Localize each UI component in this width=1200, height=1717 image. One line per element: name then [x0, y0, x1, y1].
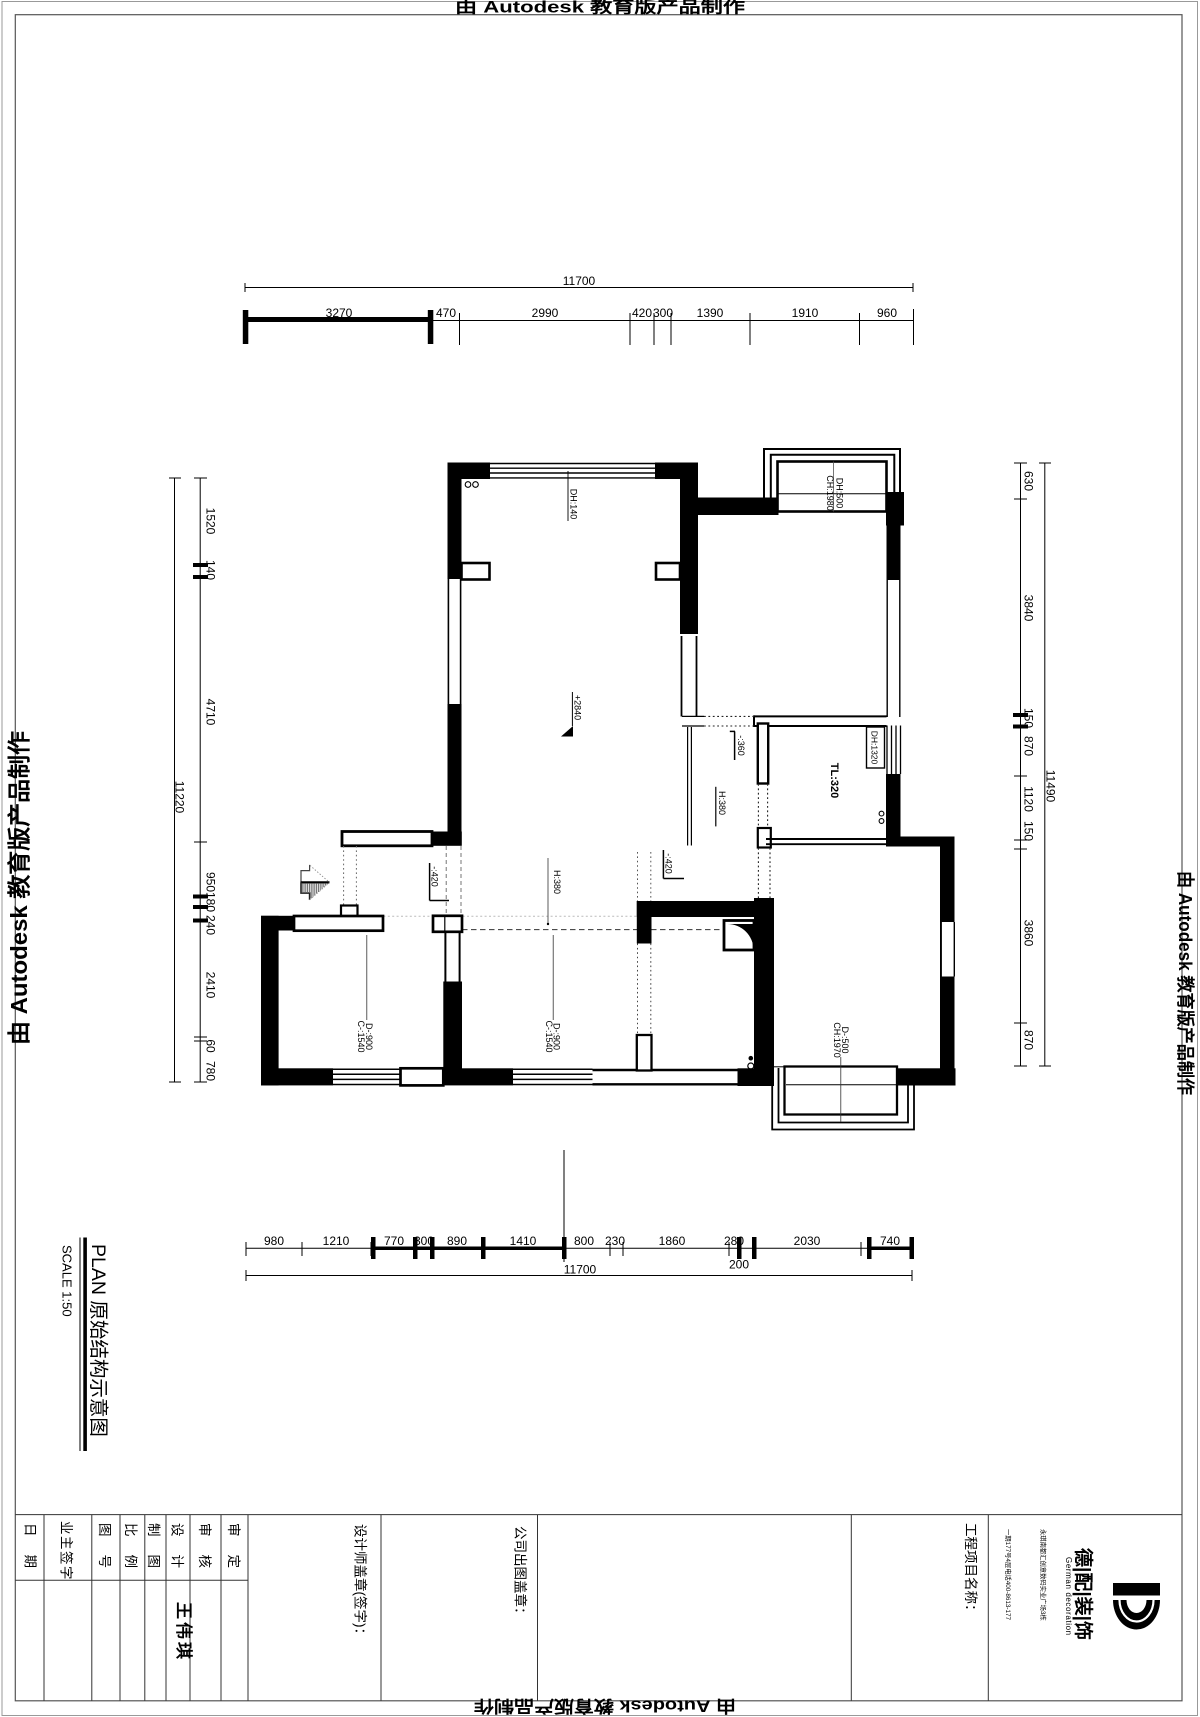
svg-text:470: 470	[436, 306, 456, 320]
svg-text:-:420: -:420	[430, 866, 440, 887]
svg-text:审核: 审核	[197, 1523, 212, 1586]
svg-text:H:380: H:380	[552, 870, 562, 894]
svg-text:2410: 2410	[204, 972, 218, 999]
svg-text:制图: 制图	[146, 1523, 161, 1586]
svg-text:890: 890	[447, 1234, 467, 1248]
svg-text:CH:1970: CH:1970	[832, 1022, 842, 1058]
svg-text:2030: 2030	[794, 1234, 821, 1248]
svg-text:230: 230	[605, 1234, 625, 1248]
svg-text:H:380: H:380	[717, 791, 727, 815]
svg-text:TL:320: TL:320	[828, 763, 840, 798]
svg-text:240: 240	[204, 915, 218, 935]
svg-text:280: 280	[724, 1234, 744, 1248]
svg-text:审定: 审定	[226, 1523, 241, 1586]
svg-text:一期177号4层电话400-8613-177: 一期177号4层电话400-8613-177	[1004, 1529, 1013, 1621]
svg-text:11700: 11700	[564, 1263, 597, 1277]
svg-text:+2840: +2840	[573, 695, 583, 720]
svg-text:150: 150	[1022, 821, 1036, 841]
svg-text:设计师盖章(签字)：: 设计师盖章(签字)：	[353, 1524, 369, 1641]
svg-text:1210: 1210	[323, 1234, 350, 1248]
svg-text:业主签字: 业主签字	[59, 1521, 75, 1581]
svg-text:DH:500: DH:500	[835, 478, 845, 509]
svg-text:2990: 2990	[532, 306, 559, 320]
svg-text:11700: 11700	[563, 274, 596, 288]
svg-text:960: 960	[877, 306, 897, 320]
svg-text:由 Autodesk 教育版产品制作: 由 Autodesk 教育版产品制作	[1175, 871, 1196, 1095]
svg-text:王伟琪: 王伟琪	[174, 1602, 194, 1662]
svg-text:770: 770	[384, 1234, 404, 1248]
svg-text:由 Autodesk 教育版产品制作: 由 Autodesk 教育版产品制作	[473, 1697, 736, 1717]
svg-text:C-:1540: C-:1540	[356, 1020, 366, 1052]
svg-text:150: 150	[1022, 708, 1036, 728]
svg-text:980: 980	[264, 1234, 284, 1248]
svg-text:870: 870	[1022, 736, 1036, 756]
svg-text:3860: 3860	[1022, 920, 1036, 947]
svg-text:设计: 设计	[170, 1523, 185, 1586]
svg-text:11490: 11490	[1044, 770, 1058, 803]
svg-text:200: 200	[729, 1258, 749, 1272]
svg-text:1410: 1410	[510, 1234, 537, 1248]
svg-text:950: 950	[204, 872, 218, 892]
svg-text:1390: 1390	[697, 306, 724, 320]
svg-text:4710: 4710	[204, 699, 218, 726]
svg-text:740: 740	[880, 1234, 900, 1248]
svg-text:300: 300	[414, 1234, 434, 1248]
svg-text:780: 780	[204, 1061, 218, 1081]
svg-text:公司出图盖章：: 公司出图盖章：	[513, 1526, 529, 1621]
svg-text:德|配|装|饰: 德|配|装|饰	[1072, 1548, 1095, 1640]
svg-text:PLAN 原始结构示意图: PLAN 原始结构示意图	[87, 1244, 109, 1437]
svg-text:由 Autodesk 教育版产品制作: 由 Autodesk 教育版产品制作	[6, 731, 32, 1045]
svg-text:1910: 1910	[792, 306, 819, 320]
svg-text:C-:1540: C-:1540	[544, 1020, 554, 1052]
svg-text:1520: 1520	[204, 508, 218, 535]
svg-text:3840: 3840	[1022, 595, 1036, 622]
svg-text:由 Autodesk 教育版产品制作: 由 Autodesk 教育版产品制作	[455, 0, 746, 17]
svg-text:SCALE 1:50: SCALE 1:50	[60, 1245, 75, 1317]
svg-text:German decoration: German decoration	[1064, 1557, 1073, 1636]
svg-text:870: 870	[1022, 1030, 1036, 1050]
svg-text:1860: 1860	[659, 1234, 686, 1248]
svg-text:180: 180	[204, 892, 218, 912]
svg-text:3270: 3270	[326, 306, 353, 320]
svg-text:DH:140: DH:140	[569, 489, 579, 520]
svg-text:-:360: -:360	[736, 735, 746, 756]
svg-text:60: 60	[204, 1039, 218, 1053]
svg-text:140: 140	[204, 560, 218, 580]
svg-text:CH:1980: CH:1980	[825, 475, 835, 511]
svg-text:工程项目名称：: 工程项目名称：	[963, 1523, 978, 1618]
svg-text:420: 420	[632, 306, 652, 320]
svg-text:比例: 比例	[123, 1523, 138, 1586]
svg-text:DH:1320: DH:1320	[870, 731, 880, 765]
svg-text:日期: 日期	[23, 1523, 38, 1586]
svg-text:11220: 11220	[173, 781, 187, 814]
svg-text:300: 300	[653, 306, 673, 320]
svg-text:1120: 1120	[1022, 786, 1036, 812]
svg-text:630: 630	[1022, 471, 1036, 491]
svg-text:永琪南都汇创意数码实业广场3栋: 永琪南都汇创意数码实业广场3栋	[1039, 1529, 1048, 1621]
svg-text:800: 800	[574, 1234, 594, 1248]
svg-text:图号: 图号	[97, 1523, 112, 1586]
svg-text:-:420: -:420	[664, 853, 674, 874]
